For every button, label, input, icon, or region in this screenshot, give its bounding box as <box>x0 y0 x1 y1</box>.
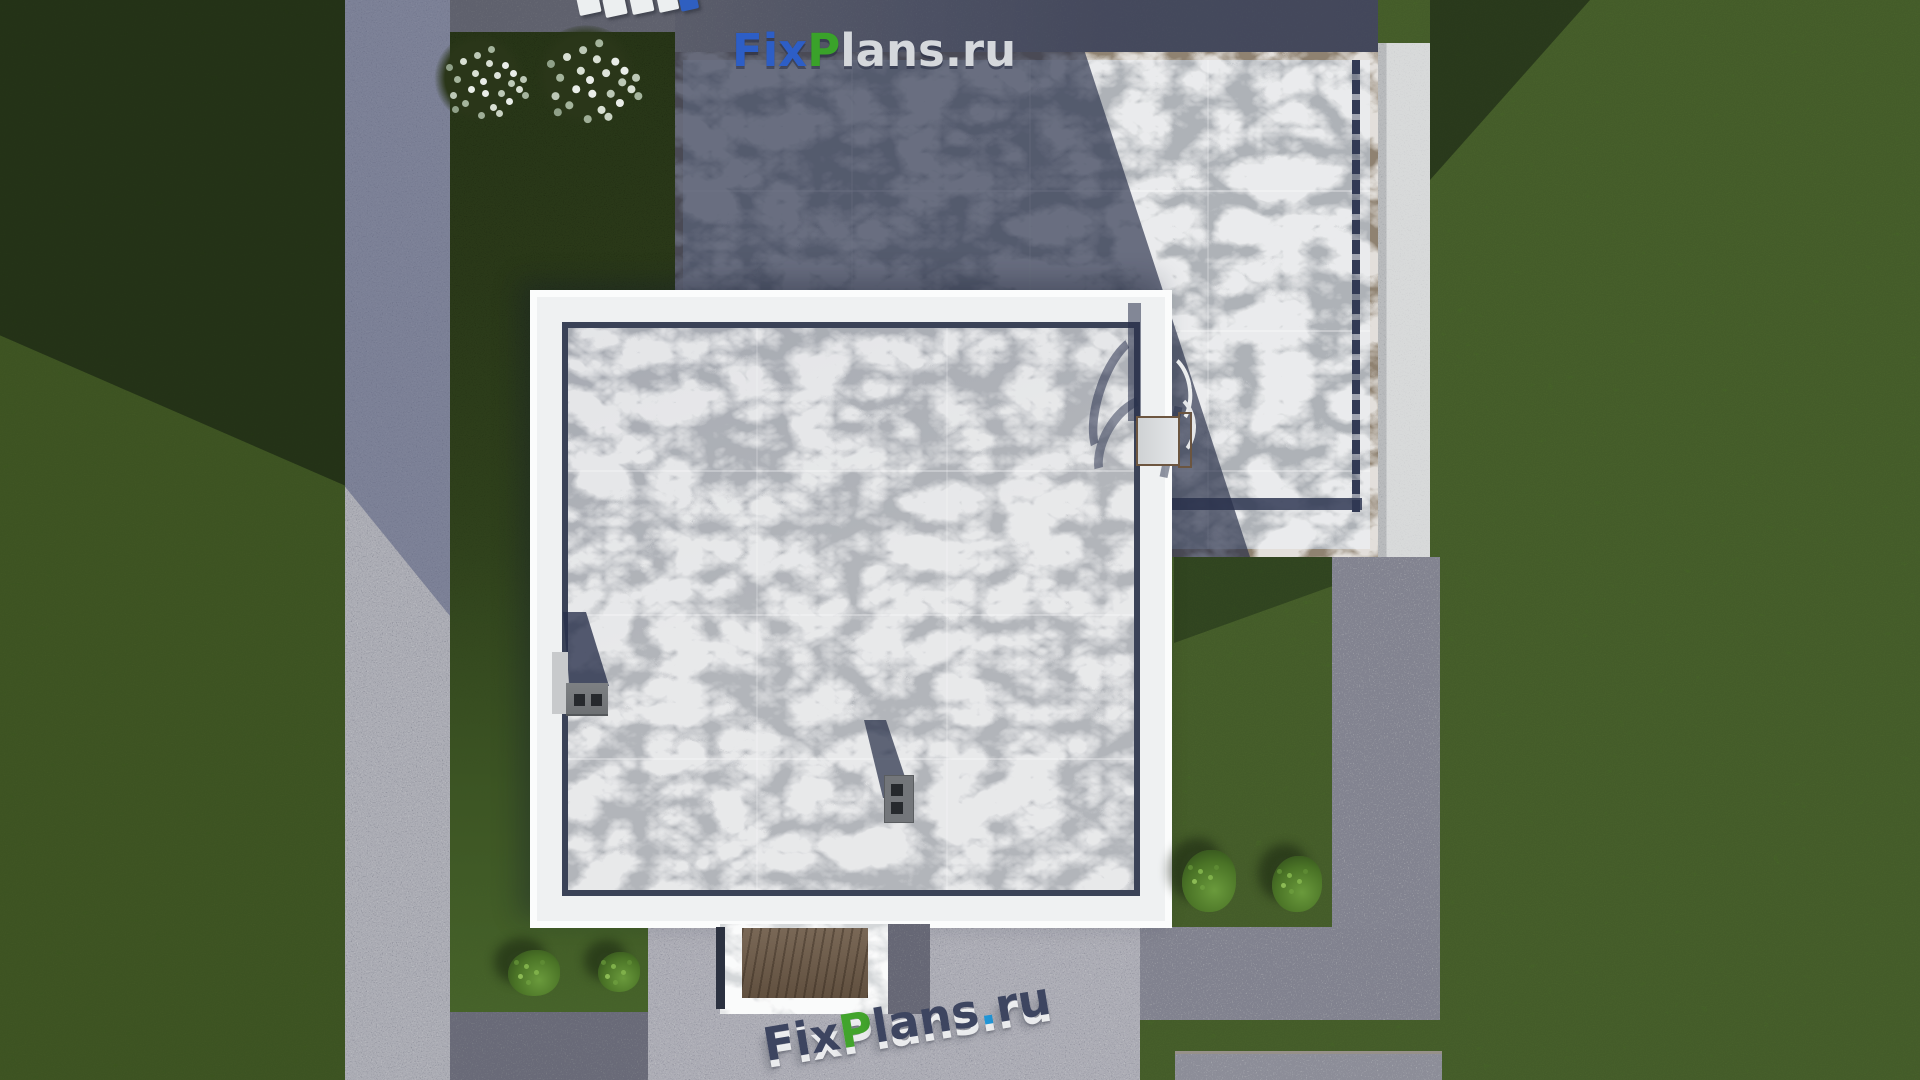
east-walkway <box>1332 557 1440 929</box>
roof-access-platform <box>1136 416 1180 466</box>
west-walkway <box>345 0 450 1080</box>
terrace-wood-deck <box>742 928 868 998</box>
vent-opening <box>891 784 903 796</box>
shrub <box>1182 850 1236 912</box>
shrub <box>508 950 560 996</box>
vent-opening <box>891 802 903 814</box>
east-boundary-wall <box>1378 43 1430 557</box>
main-house-roof-membrane <box>562 322 1140 896</box>
main-house-parapet <box>530 290 1172 928</box>
watermark-segment: Fix <box>732 24 807 77</box>
shrub <box>1272 856 1322 912</box>
shadow-on-west-walkway <box>345 0 450 616</box>
ladder-shadow-on-parapet <box>1128 303 1141 421</box>
watermark-segment: P <box>807 24 840 77</box>
site-plan-render: FixPlans.ru FixPlans.ru <box>0 0 1920 1080</box>
chimney-vent <box>574 694 585 706</box>
watermark-segment: .ru <box>945 24 1016 77</box>
south-concrete-pad <box>1175 1051 1442 1080</box>
shrub <box>598 952 640 992</box>
watermark-segment: ru <box>991 971 1055 1033</box>
vent-stack <box>884 775 914 823</box>
watermark-fixplans-top: FixPlans.ru <box>732 24 1016 77</box>
terrace-edge-shadow <box>716 927 725 1009</box>
south-west-asphalt <box>450 1012 648 1080</box>
south-path-arm <box>1140 927 1440 1020</box>
roof-access-frame <box>1178 412 1192 468</box>
roof-drain-channel-vertical <box>1352 60 1360 512</box>
chimney-vent <box>591 694 602 706</box>
watermark-segment: lans <box>840 24 945 77</box>
chimney <box>566 683 608 716</box>
